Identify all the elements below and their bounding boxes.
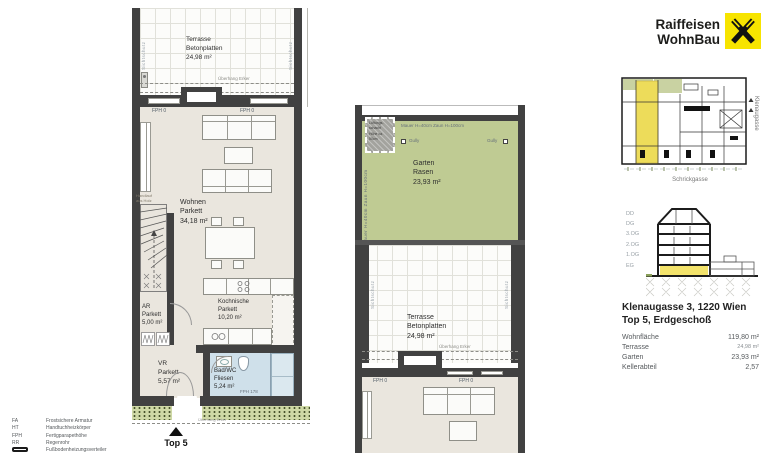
room-surface: Rasen	[413, 168, 441, 177]
chair	[211, 260, 222, 269]
legend-row: RR Regenrohr	[12, 440, 212, 447]
room-area: 10,20 m²	[218, 315, 249, 323]
room-label-garten: Garten Rasen 23,93 m²	[413, 159, 441, 187]
overhang-label: Überhang Erker	[218, 76, 250, 81]
area-row: Kellerabteil 2,57	[622, 364, 759, 371]
section-level-dg: DG	[626, 221, 634, 227]
unit-title-line2: Top 5, Erdgeschoß	[622, 315, 762, 328]
gully-icon	[503, 139, 508, 144]
area-row: Wohnfläche 119,80 m²	[622, 334, 759, 341]
room-label-kochnische: Kochnische Parkett 10,20 m²	[218, 299, 249, 322]
rainpipe-icon	[141, 72, 148, 88]
area-value: 119,80 m²	[728, 334, 759, 341]
legend-abbr: FA	[12, 418, 46, 425]
area-row: Terrasse 24,98 m²	[622, 344, 759, 351]
logo-wordmark: Raiffeisen WohnBau	[620, 18, 720, 48]
room-surface: Parkett	[142, 312, 162, 320]
chair	[233, 260, 244, 269]
room-name: Terrasse	[407, 313, 446, 322]
coffee-table	[449, 421, 477, 441]
unit-title: Klenaugasse 3, 1220 Wien Top 5, Erdgesch…	[622, 302, 762, 327]
wall	[294, 8, 302, 398]
area-label: Wohnfläche	[622, 334, 659, 341]
room-surface: Betonplatten	[407, 322, 446, 331]
street-label-bottom: Schrickgasse	[655, 177, 725, 183]
wall	[355, 105, 362, 453]
room-area: 24,98 m²	[407, 332, 446, 341]
logo-line2: WohnBau	[620, 33, 720, 48]
room-area: 5,00 m²	[142, 320, 162, 328]
area-label: Terrasse	[622, 344, 649, 351]
sofa	[202, 169, 272, 193]
stove-icon	[236, 280, 252, 293]
floor-heating-manifold-icon	[12, 447, 28, 452]
legend-abbr: FPH	[12, 433, 46, 440]
overhang-dashed-line	[140, 83, 294, 84]
dining-table	[205, 227, 255, 259]
fph-label: FPH 178	[240, 389, 258, 394]
floorplan-garden-side: Mauer H=40cm Zaun H=100cm Mauer H=40cm Z…	[355, 105, 525, 453]
room-name: Wohnen	[180, 198, 208, 207]
area-label: Garten	[622, 354, 643, 361]
bay-window-erker	[181, 87, 222, 107]
coffee-table	[224, 147, 253, 164]
unit-title-line1: Klenaugasse 3, 1220 Wien	[622, 302, 762, 315]
room-surface: Parkett	[180, 207, 208, 216]
area-value: 23,93 m²	[731, 354, 759, 361]
erker-glass	[404, 356, 436, 365]
section-level-3og: 3.OG	[626, 231, 639, 237]
wall	[518, 105, 525, 453]
vent-line: Höhe ca.	[369, 132, 384, 137]
ventilation-note: Lüftungs- schacht Höhe ca. 50cm	[369, 121, 384, 142]
room-name: Kochnische	[218, 299, 249, 307]
sichtschutz-label: Sichtschutz	[141, 24, 146, 70]
raiffeisen-logo	[725, 13, 761, 49]
washer-icon	[141, 332, 155, 346]
legend-row: HT Handtuchheizkörper	[12, 425, 212, 432]
wall-fence-note: Mauer H=40cm Zaun H=100cm	[363, 145, 368, 245]
window	[481, 371, 503, 375]
gable-cross-icon	[725, 13, 761, 49]
rainpipe-dot	[143, 75, 146, 78]
shower	[271, 353, 294, 398]
floorplan-sheet: Sichtschutz Sichtschutz Terrasse Betonpl…	[0, 0, 770, 453]
staircase	[140, 204, 167, 292]
exterior-wall	[200, 396, 302, 406]
legend-abbr: RR	[12, 440, 46, 447]
section-level-eg: EG	[626, 263, 634, 269]
erker-glass	[187, 92, 216, 102]
handrail-line2: aus Holz	[136, 199, 152, 204]
gully-label: Gully	[409, 138, 419, 143]
room-area: 24,98 m²	[186, 54, 223, 63]
window	[148, 98, 180, 104]
street-label-right: Klenaugasse	[753, 96, 759, 131]
privacy-screen	[511, 245, 518, 363]
kitchen-cabinets	[272, 295, 294, 348]
room-label-ar: AR Parkett 5,00 m²	[142, 304, 162, 327]
room-label-terrasse: Terrasse Betonplatten 24,98 m²	[186, 36, 223, 62]
fph-label: FPH 0	[459, 378, 473, 384]
room-area: 5,24 m²	[214, 384, 236, 392]
room-surface: Fliesen	[214, 376, 236, 384]
property-line	[307, 8, 308, 107]
gully-icon	[401, 139, 406, 144]
room-name: AR	[142, 304, 162, 312]
sofa	[423, 387, 495, 415]
room-label-terrasse-2: Terrasse Betonplatten 24,98 m²	[407, 313, 446, 341]
vent-line: 50cm	[369, 137, 384, 142]
building-section	[646, 204, 762, 298]
legend-abbr	[12, 447, 46, 453]
interior-wall	[167, 213, 174, 345]
window	[250, 98, 288, 104]
area-row: Garten 23,93 m²	[622, 354, 759, 361]
sofa	[202, 115, 276, 140]
sichtschutz-label: Sichtschutz	[370, 263, 375, 309]
area-table: Wohnfläche 119,80 m² Terrasse 24,98 m² G…	[622, 334, 759, 371]
fph-label: FPH 0	[240, 108, 254, 114]
overhang-label: Überhang Erker	[439, 344, 471, 349]
legend-desc: Handtuchheizkörper	[46, 425, 91, 432]
room-name: Garten	[413, 159, 441, 168]
legend-desc: Regenrohr	[46, 440, 70, 447]
room-area: 23,93 m²	[413, 178, 441, 187]
legend-row: Fußbodenheizungsverteiler	[12, 447, 212, 453]
window-tall	[140, 122, 151, 192]
room-name: VR	[158, 360, 180, 369]
property-line	[355, 105, 525, 106]
wall-fence-note: Mauer H=40cm Zaun H=100cm	[401, 123, 464, 128]
chair	[233, 217, 244, 226]
fph-label: FPH 0	[373, 378, 387, 384]
section-level-2og: 2.OG	[626, 242, 639, 248]
area-label: Kellerabteil	[622, 364, 657, 371]
sichtschutz-label: Sichtschutz	[504, 263, 509, 309]
window-tall	[362, 391, 372, 439]
handrail-note: Handlauf aus Holz	[136, 194, 152, 204]
fph-label: FPH 0	[152, 108, 166, 114]
legend: FA Frostsichere Armatur HT Handtuchheizk…	[12, 418, 212, 453]
area-value: 24,98 m²	[737, 344, 759, 351]
gully-label: Gully	[487, 138, 497, 143]
ventilation-shaft: Lüftungs- schacht Höhe ca. 50cm	[365, 117, 395, 153]
room-label-wohnen: Wohnen Parkett 34,18 m²	[180, 198, 208, 226]
legend-desc: Frostsichere Armatur	[46, 418, 92, 425]
exterior-wall	[132, 396, 174, 406]
legend-desc: Fußbodenheizungsverteiler	[46, 447, 107, 453]
logo-line1: Raiffeisen	[620, 18, 720, 33]
floorplan-top5: Sichtschutz Sichtschutz Terrasse Betonpl…	[132, 8, 310, 453]
legend-desc: Fertigparapethöhe	[46, 433, 87, 440]
room-surface: Parkett	[218, 307, 249, 315]
washer-icon	[156, 332, 170, 346]
interior-wall	[203, 353, 210, 398]
area-value: 2,57	[745, 364, 759, 371]
room-name: Terrasse	[186, 36, 223, 45]
window	[447, 371, 473, 375]
room-area: 34,18 m²	[180, 217, 208, 226]
room-surface: Betonplatten	[186, 45, 223, 54]
legend-row: FA Frostsichere Armatur	[12, 418, 212, 425]
section-level-dd: DD	[626, 211, 634, 217]
chair	[211, 217, 222, 226]
interior-wall	[196, 345, 302, 353]
legend-row: FPH Fertigparapethöhe	[12, 433, 212, 440]
section-level-1og: 1.OG	[626, 252, 639, 258]
sichtschutz-label: Sichtschutz	[288, 24, 293, 70]
privacy-screen	[362, 245, 369, 363]
site-plan	[620, 76, 758, 176]
legend-abbr: HT	[12, 425, 46, 432]
sink-icon	[210, 331, 226, 342]
